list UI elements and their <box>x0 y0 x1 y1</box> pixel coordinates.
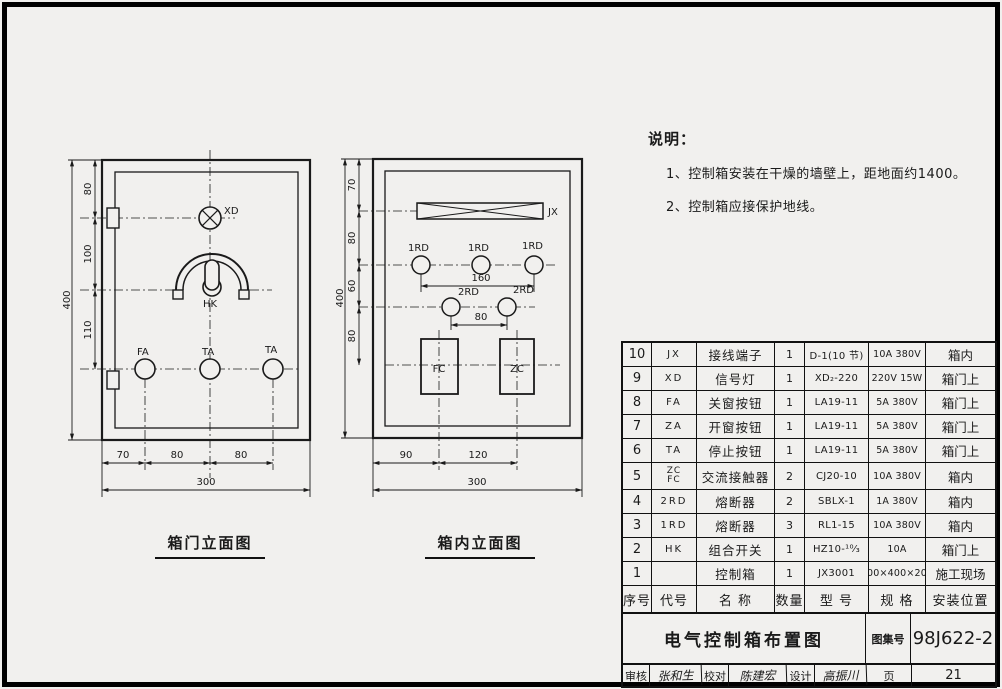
cell-name: 控制箱 <box>697 562 775 586</box>
door-buttons <box>135 359 283 379</box>
svg-text:90: 90 <box>400 450 413 461</box>
drawing-title: 电气控制箱布置图 <box>623 614 866 663</box>
cell-name: 关窗按钮 <box>697 391 775 415</box>
cell-seq: 10 <box>623 343 652 367</box>
cell-seq: 7 <box>623 415 652 439</box>
cell-loc: 箱内 <box>926 514 995 538</box>
cell-name: 信号灯 <box>697 367 775 391</box>
cell-seq: 9 <box>623 367 652 391</box>
cell-model: RL1-15 <box>805 514 869 538</box>
interior-box-outline <box>373 159 582 438</box>
cell-spec: 300×400×200 <box>869 562 926 586</box>
cell-seq: 3 <box>623 514 652 538</box>
svg-text:300: 300 <box>196 477 215 488</box>
svg-text:80: 80 <box>347 232 358 245</box>
cell-qty: 1 <box>775 391 805 415</box>
cell-spec: 10A 380V <box>869 343 926 367</box>
header-model: 型 号 <box>805 586 869 612</box>
table-header-row: 序号 代号 名 称 数量 型 号 规 格 安装位置 <box>623 586 995 612</box>
label-ta1: TA <box>201 347 214 358</box>
cell-code: 1RD <box>652 514 697 538</box>
cell-spec: 5A 380V <box>869 391 926 415</box>
header-location: 安装位置 <box>926 586 995 612</box>
svg-text:400: 400 <box>335 288 346 307</box>
table-row-1: 1 控制箱 1 JX3001 300×400×200 施工现场 <box>623 562 995 586</box>
cell-spec: 10A 380V <box>869 463 926 490</box>
combination-switch-HK <box>173 254 249 299</box>
button-ta1 <box>200 359 220 379</box>
svg-text:80: 80 <box>475 312 488 323</box>
cell-name: 停止按钮 <box>697 439 775 463</box>
table-row-5: 5 ZC FC 交流接触器 2 CJ20-10 10A 380V 箱内 <box>623 463 995 490</box>
cell-qty: 1 <box>775 367 805 391</box>
table-row-10: 10 JX 接线端子 1 D-1(10 节) 10A 380V 箱内 <box>623 343 995 367</box>
label-xd: XD <box>224 206 239 217</box>
signal-lamp-XD <box>199 207 221 229</box>
designer-label: 设计 <box>787 665 815 686</box>
table-row-3: 3 1RD 熔断器 3 RL1-15 10A 380V 箱内 <box>623 514 995 538</box>
cell-qty: 1 <box>775 562 805 586</box>
checker-label: 校对 <box>702 665 729 686</box>
cell-loc: 箱内 <box>926 463 995 490</box>
cell-model: SBLX-1 <box>805 490 869 514</box>
cell-name: 开窗按钮 <box>697 415 775 439</box>
cell-loc: 施工现场 <box>926 562 995 586</box>
cell-loc: 箱门上 <box>926 415 995 439</box>
svg-text:300: 300 <box>467 477 486 488</box>
header-spec: 规 格 <box>869 586 926 612</box>
table-row-8: 8 FA 关窗按钮 1 LA19-11 5A 380V 箱门上 <box>623 391 995 415</box>
cell-code: ZC FC <box>652 463 697 490</box>
cell-seq: 2 <box>623 538 652 562</box>
cell-loc: 箱门上 <box>926 367 995 391</box>
svg-text:110: 110 <box>83 320 94 339</box>
cell-model: JX3001 <box>805 562 869 586</box>
cell-seq: 5 <box>623 463 652 490</box>
cell-qty: 1 <box>775 415 805 439</box>
cell-loc: 箱门上 <box>926 439 995 463</box>
cell-loc: 箱内 <box>926 490 995 514</box>
note-item-2: 2、控制箱应接保护地线。 <box>666 196 978 215</box>
cell-spec: 10A 380V <box>869 514 926 538</box>
parts-table: 10 JX 接线端子 1 D-1(10 节) 10A 380V 箱内 9 XD … <box>621 341 997 688</box>
label-1rd-c: 1RD <box>522 241 543 252</box>
svg-text:80: 80 <box>235 450 248 461</box>
cell-qty: 1 <box>775 343 805 367</box>
label-jx: JX <box>547 207 558 218</box>
door-hinge-top <box>107 208 119 228</box>
cell-qty: 1 <box>775 439 805 463</box>
note-item-1: 1、控制箱安装在干燥的墙壁上，距地面约1400。 <box>666 163 978 182</box>
cell-name: 熔断器 <box>697 514 775 538</box>
cell-spec: 220V 15W <box>869 367 926 391</box>
cell-name: 熔断器 <box>697 490 775 514</box>
header-seq: 序号 <box>623 586 652 612</box>
door-elevation-caption: 箱门立面图 <box>155 532 265 559</box>
cell-code: TA <box>652 439 697 463</box>
cell-model: HZ10-¹⁰⁄₃ <box>805 538 869 562</box>
label-1rd-a: 1RD <box>408 243 429 254</box>
cell-name: 组合开关 <box>697 538 775 562</box>
checker-signature: 陈建宏 <box>729 664 788 687</box>
cell-loc: 箱内 <box>926 343 995 367</box>
button-ta2 <box>263 359 283 379</box>
header-name: 名 称 <box>697 586 775 612</box>
cell-spec: 10A <box>869 538 926 562</box>
cell-name: 交流接触器 <box>697 463 775 490</box>
svg-text:80: 80 <box>83 183 94 196</box>
header-code: 代号 <box>652 586 697 612</box>
cell-seq: 6 <box>623 439 652 463</box>
label-2rd-b: 2RD <box>513 285 534 296</box>
label-ta2: TA <box>264 345 277 356</box>
cell-seq: 8 <box>623 391 652 415</box>
cell-code: ZA <box>652 415 697 439</box>
signature-row: 审核 张和生 校对 陈建宏 设计 高振川 页 21 <box>623 663 995 686</box>
interior-dimension-text: 70 80 60 80 400 160 80 90 120 300 <box>335 179 491 488</box>
reviewer-signature: 张和生 <box>650 664 703 687</box>
atlas-number-label: 图集号 <box>866 614 911 663</box>
svg-text:80: 80 <box>347 330 358 343</box>
svg-text:120: 120 <box>468 450 487 461</box>
cell-spec: 1A 380V <box>869 490 926 514</box>
door-dimension-lines <box>68 160 310 497</box>
cell-model: XD₂-220 <box>805 367 869 391</box>
cell-model: LA19-11 <box>805 391 869 415</box>
cell-model: D-1(10 节) <box>805 343 869 367</box>
table-row-4: 4 2RD 熔断器 2 SBLX-1 1A 380V 箱内 <box>623 490 995 514</box>
page-label: 页 <box>867 665 912 686</box>
cell-code: XD <box>652 367 697 391</box>
cell-qty: 2 <box>775 490 805 514</box>
cell-qty: 3 <box>775 514 805 538</box>
atlas-number: 98J622-2 <box>911 614 995 663</box>
designer-signature: 高振川 <box>815 664 868 687</box>
cell-spec: 5A 380V <box>869 415 926 439</box>
label-fa: FA <box>137 347 149 358</box>
label-1rd-b: 1RD <box>468 243 489 254</box>
cell-name: 接线端子 <box>697 343 775 367</box>
door-elevation-drawing: XD HK FA TA TA 80 100 110 400 70 80 <box>60 140 330 502</box>
svg-text:100: 100 <box>83 244 94 263</box>
door-hinge-bottom <box>107 371 119 389</box>
cell-seq: 1 <box>623 562 652 586</box>
table-row-7: 7 ZA 开窗按钮 1 LA19-11 5A 380V 箱门上 <box>623 415 995 439</box>
door-centerlines <box>80 150 298 478</box>
cell-loc: 箱门上 <box>926 538 995 562</box>
cell-code: JX <box>652 343 697 367</box>
label-fc: FC <box>433 364 446 375</box>
cell-qty: 1 <box>775 538 805 562</box>
notes-heading: 说明： <box>648 128 978 149</box>
label-2rd-a: 2RD <box>458 287 479 298</box>
svg-text:70: 70 <box>117 450 130 461</box>
svg-text:80: 80 <box>171 450 184 461</box>
reviewer-label: 审核 <box>623 665 650 686</box>
label-zc: ZC <box>510 364 524 375</box>
interior-elevation-drawing: JX 1RD 1RD 1RD 2RD 2RD FC ZC <box>335 140 597 502</box>
cell-code: HK <box>652 538 697 562</box>
cell-spec: 5A 380V <box>869 439 926 463</box>
notes-section: 说明： 1、控制箱安装在干燥的墙壁上，距地面约1400。 2、控制箱应接保护地线… <box>648 128 978 215</box>
cell-qty: 2 <box>775 463 805 490</box>
table-row-6: 6 TA 停止按钮 1 LA19-11 5A 380V 箱门上 <box>623 439 995 463</box>
svg-text:400: 400 <box>62 290 73 309</box>
interior-elevation-caption: 箱内立面图 <box>425 532 535 559</box>
page-number: 21 <box>912 665 995 686</box>
cell-seq: 4 <box>623 490 652 514</box>
svg-text:60: 60 <box>347 280 358 293</box>
svg-text:70: 70 <box>347 179 358 192</box>
cell-model: LA19-11 <box>805 415 869 439</box>
svg-text:160: 160 <box>471 273 490 284</box>
terminal-strip-JX <box>417 203 543 219</box>
table-row-2: 2 HK 组合开关 1 HZ10-¹⁰⁄₃ 10A 箱门上 <box>623 538 995 562</box>
cell-model: LA19-11 <box>805 439 869 463</box>
door-dimension-text: 80 100 110 400 70 80 80 300 <box>62 183 247 488</box>
cell-model: CJ20-10 <box>805 463 869 490</box>
header-qty: 数量 <box>775 586 805 612</box>
button-fa <box>135 359 155 379</box>
cell-code <box>652 562 697 586</box>
label-hk: HK <box>203 299 218 310</box>
cell-code: FA <box>652 391 697 415</box>
title-block: 电气控制箱布置图 图集号 98J622-2 <box>623 612 995 663</box>
table-row-9: 9 XD 信号灯 1 XD₂-220 220V 15W 箱门上 <box>623 367 995 391</box>
cell-loc: 箱门上 <box>926 391 995 415</box>
cell-code: 2RD <box>652 490 697 514</box>
